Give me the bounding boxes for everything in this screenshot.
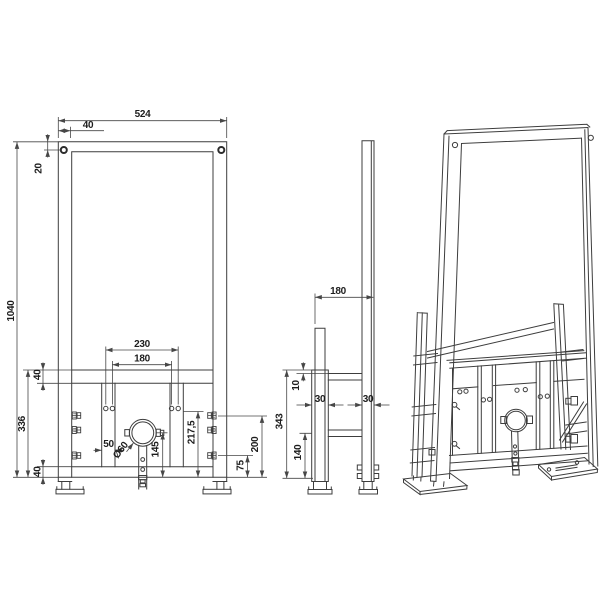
dim-front-mid-bolt-height: 200 [250, 436, 261, 453]
dim-front-bottom-rail-height: 40 [33, 466, 44, 477]
dim-side-lower-bar-height: 140 [293, 444, 304, 461]
dim-front-pipe-diameter: Ø60 [111, 439, 131, 461]
dim-side-bracket-width: 30 [315, 394, 326, 405]
dim-front-lower-bolt-height: 75 [236, 460, 247, 471]
dim-front-upper-bolt-height: 217,5 [187, 420, 198, 444]
iso-rear-right-bracket [554, 304, 587, 450]
side-bolts [357, 465, 378, 479]
dim-front-hole-offset: 20 [34, 163, 45, 174]
dim-side-post-width: 30 [363, 394, 374, 405]
bidet-frame-technical-drawing: 524 40 20 1040 230 180 40 336 50 Ø60 145… [0, 0, 600, 600]
dim-side-top-offset: 10 [291, 380, 302, 391]
iso-anchor-holes [452, 135, 593, 147]
dim-side-depth: 180 [330, 286, 347, 297]
side-feet [308, 482, 378, 495]
front-frame-outline [58, 142, 226, 482]
side-frame-outline [312, 141, 374, 482]
dim-front-strip-width: 50 [103, 439, 114, 450]
front-dimensions [13, 117, 267, 485]
dim-side-bracket-height: 343 [274, 413, 285, 430]
dim-front-pipe-center-height: 145 [151, 441, 162, 458]
dim-front-lower-frame-height: 336 [17, 415, 28, 432]
dim-front-anchor-spacing-outer: 230 [134, 339, 151, 350]
dim-front-overall-height: 1040 [6, 300, 17, 322]
dim-front-overall-width: 524 [135, 109, 152, 120]
iso-feet [404, 458, 598, 495]
technical-drawing-page: 524 40 20 1040 230 180 40 336 50 Ø60 145… [0, 0, 600, 600]
iso-rear-rail [428, 323, 554, 359]
iso-side-bolts [566, 397, 578, 444]
side-view: 180 10 30 30 343 140 [274, 141, 389, 494]
dim-front-anchor-spacing-inner: 180 [134, 353, 151, 364]
iso-view [404, 124, 598, 494]
front-view: 524 40 20 1040 230 180 40 336 50 Ø60 145… [6, 109, 267, 494]
dim-front-top-rail-height: 40 [33, 369, 44, 380]
dim-front-profile-width: 40 [83, 120, 94, 131]
